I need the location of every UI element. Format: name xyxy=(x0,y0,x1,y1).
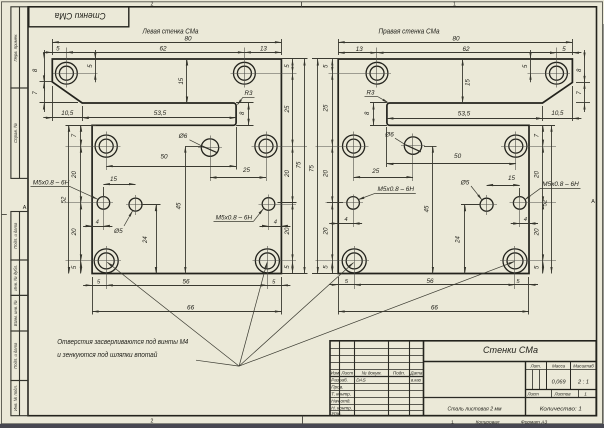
svg-text:5: 5 xyxy=(284,64,291,68)
svg-text:М5х0.8 – 6Н: М5х0.8 – 6Н xyxy=(542,181,579,188)
svg-text:Лист: Лист xyxy=(527,392,540,397)
svg-text:Справ. №: Справ. № xyxy=(13,123,19,143)
svg-text:5: 5 xyxy=(284,265,291,269)
svg-text:1: 1 xyxy=(584,392,587,397)
svg-text:20: 20 xyxy=(533,171,540,179)
svg-text:R3: R3 xyxy=(245,90,253,97)
svg-text:15: 15 xyxy=(508,175,515,182)
svg-text:5: 5 xyxy=(562,46,566,53)
svg-text:Утв.: Утв. xyxy=(331,411,341,416)
svg-text:53,5: 53,5 xyxy=(154,110,167,117)
svg-text:13: 13 xyxy=(260,46,267,53)
svg-text:66: 66 xyxy=(187,305,195,312)
svg-text:15: 15 xyxy=(466,79,472,86)
svg-text:5: 5 xyxy=(533,265,540,269)
svg-text:52: 52 xyxy=(61,196,67,203)
svg-text:Ø6: Ø6 xyxy=(178,133,188,140)
svg-text:Дата: Дата xyxy=(409,371,423,376)
svg-text:М5х0.8 – 6Н: М5х0.8 – 6Н xyxy=(33,180,70,187)
svg-text:4: 4 xyxy=(274,219,277,225)
svg-text:20: 20 xyxy=(71,171,78,179)
svg-text:5: 5 xyxy=(71,265,78,269)
svg-text:2: 2 xyxy=(151,419,154,425)
svg-text:2: 2 xyxy=(151,2,154,8)
svg-text:53,5: 53,5 xyxy=(458,110,471,117)
svg-text:Пров.: Пров. xyxy=(331,385,343,390)
svg-text:7: 7 xyxy=(533,133,540,137)
svg-text:5: 5 xyxy=(56,46,60,53)
svg-text:25: 25 xyxy=(284,105,291,113)
svg-text:М5х0.8 – 6Н: М5х0.8 – 6Н xyxy=(378,186,415,193)
svg-text:56: 56 xyxy=(182,278,190,285)
svg-text:4: 4 xyxy=(344,217,347,223)
svg-text:№ докум.: № докум. xyxy=(362,371,382,376)
svg-text:Количество: 1: Количество: 1 xyxy=(540,407,582,413)
svg-text:75: 75 xyxy=(296,161,302,168)
svg-text:Н. контр.: Н. контр. xyxy=(331,406,352,411)
svg-text:Левая стенка СМа: Левая стенка СМа xyxy=(142,28,199,35)
svg-text:20: 20 xyxy=(323,227,330,235)
svg-text:Лист: Лист xyxy=(340,371,353,376)
svg-text:20: 20 xyxy=(284,227,291,235)
svg-text:20: 20 xyxy=(323,170,330,178)
svg-text:Правая стенка СМа: Правая стенка СМа xyxy=(379,28,440,35)
svg-text:4: 4 xyxy=(96,219,99,225)
svg-text:Стенки СМа: Стенки СМа xyxy=(483,345,538,356)
svg-text:25: 25 xyxy=(371,168,379,175)
svg-text:56: 56 xyxy=(426,278,434,285)
svg-text:Подп. и дата: Подп. и дата xyxy=(13,222,19,248)
svg-text:13: 13 xyxy=(356,46,363,53)
svg-text:Масштаб: Масштаб xyxy=(573,364,594,369)
svg-text:Сталь листовая 2 мм: Сталь листовая 2 мм xyxy=(448,407,502,413)
svg-text:DAS: DAS xyxy=(356,378,366,383)
svg-text:Ø6: Ø6 xyxy=(384,132,394,139)
svg-text:50: 50 xyxy=(160,154,168,161)
svg-text:50: 50 xyxy=(454,153,462,160)
svg-text:1: 1 xyxy=(453,2,456,8)
svg-text:А: А xyxy=(591,199,595,205)
svg-text:Лит.: Лит. xyxy=(530,364,541,369)
svg-text:45: 45 xyxy=(424,205,430,212)
svg-text:24: 24 xyxy=(455,236,461,244)
svg-text:62: 62 xyxy=(462,46,470,53)
svg-text:Ø5: Ø5 xyxy=(460,179,470,186)
svg-text:20: 20 xyxy=(284,170,291,178)
svg-text:Нач.отд.: Нач.отд. xyxy=(331,399,350,404)
svg-text:7: 7 xyxy=(71,133,78,137)
svg-text:Листов: Листов xyxy=(554,392,572,397)
svg-text:62: 62 xyxy=(159,46,167,53)
svg-text:15: 15 xyxy=(110,176,117,183)
svg-text:4: 4 xyxy=(524,217,527,223)
svg-text:25: 25 xyxy=(323,104,330,112)
svg-text:Ø5: Ø5 xyxy=(113,228,123,235)
svg-text:15: 15 xyxy=(179,77,185,84)
svg-text:2 : 1: 2 : 1 xyxy=(577,379,589,385)
svg-text:Т. контр.: Т. контр. xyxy=(331,392,351,397)
svg-text:75: 75 xyxy=(309,165,315,172)
svg-text:20: 20 xyxy=(533,228,540,236)
svg-text:80: 80 xyxy=(184,35,192,42)
svg-text:А: А xyxy=(23,205,27,211)
svg-text:10,5: 10,5 xyxy=(551,110,564,117)
svg-text:М5х0.8 – 6Н: М5х0.8 – 6Н xyxy=(216,214,253,221)
svg-text:Взам. инв. №: Взам. инв. № xyxy=(13,300,19,326)
svg-text:в.као: в.као xyxy=(411,377,422,382)
svg-text:Стенки СМа: Стенки СМа xyxy=(55,11,106,21)
svg-text:Масса: Масса xyxy=(552,364,566,369)
svg-text:24: 24 xyxy=(143,236,149,244)
svg-text:Подп. и дата: Подп. и дата xyxy=(13,342,19,368)
svg-text:Инв. № дубл.: Инв. № дубл. xyxy=(13,265,19,291)
svg-text:Подп.: Подп. xyxy=(393,371,405,376)
svg-text:Разраб.: Разраб. xyxy=(331,378,348,383)
svg-text:5: 5 xyxy=(323,265,330,269)
svg-text:45: 45 xyxy=(177,202,183,209)
svg-text:R3: R3 xyxy=(367,89,375,96)
svg-text:20: 20 xyxy=(71,228,78,236)
svg-text:5: 5 xyxy=(323,64,330,68)
svg-text:Отверстия засверливаются под в: Отверстия засверливаются под винты М4 xyxy=(57,337,188,346)
svg-text:и зенкуются под шляпки впотай: и зенкуются под шляпки впотай xyxy=(57,350,157,359)
svg-text:Инв. № подл.: Инв. № подл. xyxy=(13,385,19,411)
svg-text:25: 25 xyxy=(242,167,250,174)
svg-text:Перв. примен.: Перв. примен. xyxy=(13,34,19,62)
svg-text:0,069: 0,069 xyxy=(552,379,566,385)
svg-text:Изм: Изм xyxy=(331,371,340,376)
svg-text:80: 80 xyxy=(452,35,460,42)
svg-text:10,5: 10,5 xyxy=(61,110,74,117)
svg-text:66: 66 xyxy=(431,305,439,312)
